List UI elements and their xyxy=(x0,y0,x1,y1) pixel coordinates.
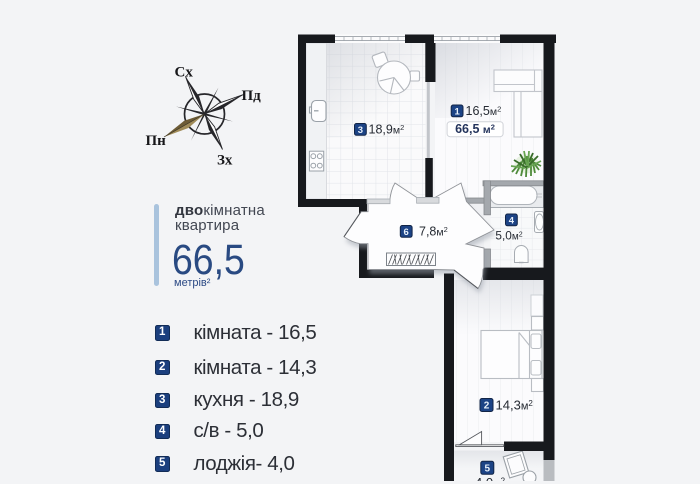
svg-text:14,3м2: 14,3м2 xyxy=(496,398,534,413)
svg-text:4,0м2: 4,0м2 xyxy=(475,475,506,481)
svg-text:4: 4 xyxy=(509,215,515,226)
svg-text:6: 6 xyxy=(404,227,409,238)
svg-text:18,9м2: 18,9м2 xyxy=(369,123,405,137)
svg-text:Пд: Пд xyxy=(242,88,262,104)
svg-text:1: 1 xyxy=(454,106,460,117)
svg-text:Сх: Сх xyxy=(175,65,194,81)
svg-text:3: 3 xyxy=(358,125,363,136)
svg-text:66,5 м2: 66,5 м2 xyxy=(455,122,495,136)
svg-text:5: 5 xyxy=(485,463,491,474)
svg-text:Пн: Пн xyxy=(146,133,167,149)
svg-text:2: 2 xyxy=(484,401,490,412)
svg-text:5,0м2: 5,0м2 xyxy=(495,229,522,243)
svg-text:Зх: Зх xyxy=(217,153,233,169)
svg-text:16,5м2: 16,5м2 xyxy=(466,104,502,118)
svg-text:7,8м2: 7,8м2 xyxy=(419,225,448,239)
